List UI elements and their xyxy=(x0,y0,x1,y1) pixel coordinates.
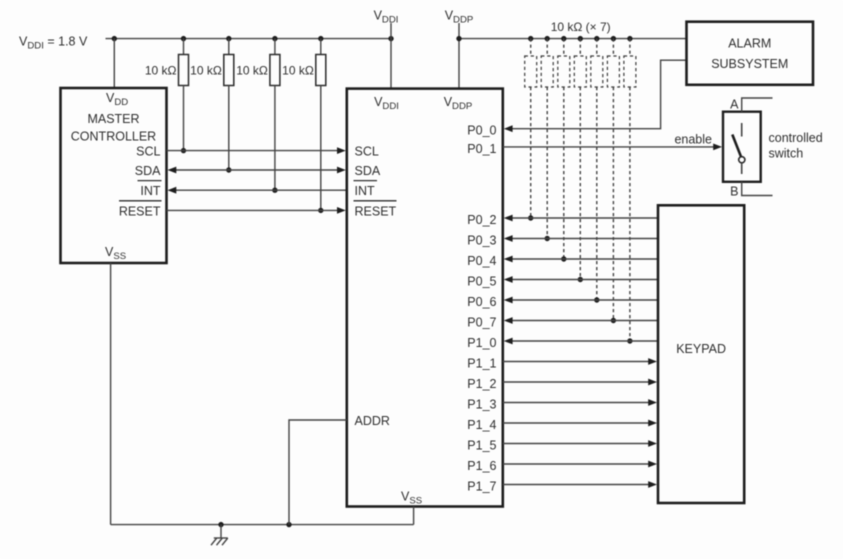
svg-text:10 kΩ (× 7): 10 kΩ (× 7) xyxy=(551,20,611,34)
svg-text:SCL: SCL xyxy=(136,145,160,159)
svg-text:RESET: RESET xyxy=(119,204,161,218)
svg-text:P0_3: P0_3 xyxy=(467,234,496,248)
svg-text:P0_4: P0_4 xyxy=(467,254,496,268)
svg-text:P0_5: P0_5 xyxy=(467,275,496,289)
svg-text:SCL: SCL xyxy=(355,145,379,159)
svg-text:P1_2: P1_2 xyxy=(467,377,496,391)
svg-text:RESET: RESET xyxy=(355,204,397,218)
svg-text:A: A xyxy=(730,98,739,112)
svg-text:CONTROLLER: CONTROLLER xyxy=(71,130,156,144)
svg-text:INT: INT xyxy=(355,184,376,198)
svg-text:ADDR: ADDR xyxy=(355,414,390,428)
svg-text:P0_6: P0_6 xyxy=(467,295,496,309)
svg-text:P1_6: P1_6 xyxy=(467,459,496,473)
svg-text:INT: INT xyxy=(140,184,161,198)
svg-text:KEYPAD: KEYPAD xyxy=(676,342,726,356)
svg-text:MASTER: MASTER xyxy=(87,112,139,126)
svg-text:P0_7: P0_7 xyxy=(467,316,496,330)
svg-text:P0_1: P0_1 xyxy=(467,142,496,156)
svg-text:ALARM: ALARM xyxy=(728,37,771,51)
svg-text:SDA: SDA xyxy=(135,164,161,178)
svg-text:10 kΩ: 10 kΩ xyxy=(190,64,222,78)
svg-text:10 kΩ: 10 kΩ xyxy=(236,64,268,78)
svg-text:10 kΩ: 10 kΩ xyxy=(282,64,314,78)
svg-text:switch: switch xyxy=(769,146,804,160)
svg-text:controlled: controlled xyxy=(769,131,823,145)
svg-text:SDA: SDA xyxy=(355,164,381,178)
svg-text:P1_4: P1_4 xyxy=(467,418,496,432)
svg-text:P0_0: P0_0 xyxy=(467,124,496,138)
svg-text:P0_2: P0_2 xyxy=(467,213,496,227)
svg-text:P1_7: P1_7 xyxy=(467,480,496,494)
svg-text:P1_3: P1_3 xyxy=(467,398,496,412)
svg-text:10 kΩ: 10 kΩ xyxy=(145,64,177,78)
svg-text:B: B xyxy=(730,184,738,198)
svg-text:SUBSYSTEM: SUBSYSTEM xyxy=(711,57,788,71)
svg-text:enable: enable xyxy=(674,133,712,147)
svg-text:P1_5: P1_5 xyxy=(467,439,496,453)
svg-text:P1_1: P1_1 xyxy=(467,357,496,371)
svg-text:P1_0: P1_0 xyxy=(467,336,496,350)
